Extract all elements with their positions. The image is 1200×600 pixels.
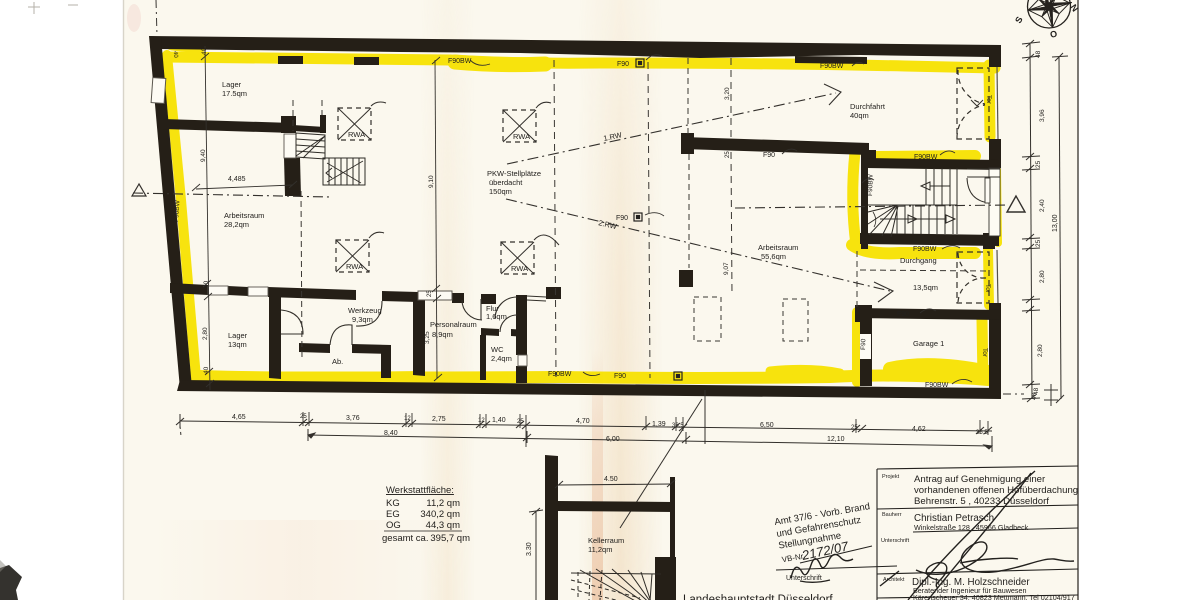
svg-text:40: 40 <box>201 47 208 55</box>
svg-text:RWA: RWA <box>513 132 530 141</box>
svg-text:4.50: 4.50 <box>604 476 618 483</box>
svg-text:13,00: 13,00 <box>1052 214 1059 232</box>
svg-text:F90BW: F90BW <box>914 154 938 161</box>
svg-text:Tor: Tor <box>984 284 991 294</box>
svg-text:WC: WC <box>491 345 504 354</box>
svg-text:2,4qm: 2,4qm <box>491 354 512 363</box>
svg-text:25: 25 <box>517 419 524 425</box>
svg-text:Landeshauptstadt Düsseldorf: Landeshauptstadt Düsseldorf <box>683 594 833 600</box>
svg-text:13qm: 13qm <box>228 340 247 349</box>
svg-text:Lager: Lager <box>222 80 242 89</box>
svg-text:vorhandenen offenen Hofüberdac: vorhandenen offenen Hofüberdachung <box>914 485 1078 496</box>
svg-text:1,6qm: 1,6qm <box>486 312 507 321</box>
svg-text:28,2qm: 28,2qm <box>224 220 249 229</box>
svg-text:F90BW: F90BW <box>448 58 472 65</box>
svg-text:48: 48 <box>1033 387 1040 395</box>
svg-text:13,5qm: 13,5qm <box>913 283 938 292</box>
svg-text:2,80: 2,80 <box>202 327 209 340</box>
svg-text:6,50: 6,50 <box>760 422 774 429</box>
svg-text:OG: OG <box>386 520 401 531</box>
svg-text:Garage 1: Garage 1 <box>913 339 944 348</box>
svg-text:12,10: 12,10 <box>827 436 845 443</box>
svg-text:F90: F90 <box>614 373 626 380</box>
svg-text:1,40: 1,40 <box>492 417 506 424</box>
svg-text:Werkzeug: Werkzeug <box>348 306 382 315</box>
svg-text:RWA: RWA <box>346 262 363 271</box>
svg-text:Tor: Tor <box>985 95 992 105</box>
svg-text:F90BW: F90BW <box>925 382 949 389</box>
svg-text:überdacht: überdacht <box>489 178 523 187</box>
svg-text:Durchfahrt: Durchfahrt <box>850 102 886 111</box>
svg-text:4,70: 4,70 <box>576 418 590 425</box>
svg-text:Werkstattfläche:: Werkstattfläche: <box>386 485 454 496</box>
svg-text:Unterschrift: Unterschrift <box>786 575 822 582</box>
svg-text:F90BW: F90BW <box>820 63 844 70</box>
svg-text:340,2 qm: 340,2 qm <box>420 509 460 520</box>
svg-text:44,3 qm: 44,3 qm <box>426 520 460 531</box>
svg-text:2,40: 2,40 <box>1039 199 1046 212</box>
svg-text:F90: F90 <box>897 311 909 318</box>
svg-text:8,40: 8,40 <box>384 430 398 437</box>
svg-text:Tor: Tor <box>981 348 988 358</box>
svg-text:PKW-Stellplätze: PKW-Stellplätze <box>487 169 541 178</box>
svg-text:3,96: 3,96 <box>1039 109 1046 122</box>
svg-text:11,2 qm: 11,2 qm <box>426 498 460 509</box>
svg-text:Bauherr: Bauherr <box>882 512 902 518</box>
svg-text:3,76: 3,76 <box>346 415 360 422</box>
svg-text:4,485: 4,485 <box>228 176 246 183</box>
svg-text:Kellerraum: Kellerraum <box>588 536 624 545</box>
svg-text:12: 12 <box>404 416 411 422</box>
svg-text:25: 25 <box>851 425 858 431</box>
svg-text:9,10: 9,10 <box>428 175 435 188</box>
svg-text:9,40: 9,40 <box>200 149 207 162</box>
svg-text:17.5qm: 17.5qm <box>222 89 247 98</box>
svg-text:4,65: 4,65 <box>232 414 246 421</box>
svg-text:8,9qm: 8,9qm <box>432 330 453 339</box>
svg-text:F90BW: F90BW <box>913 246 937 253</box>
svg-text:40: 40 <box>203 280 210 288</box>
svg-text:3.30: 3.30 <box>526 542 533 556</box>
svg-text:9,3qm: 9,3qm <box>352 315 373 324</box>
svg-text:Kärenscheuer 34, 40823 Mettman: Kärenscheuer 34, 40823 Mettmann, Tel 021… <box>913 593 1075 600</box>
svg-text:25: 25 <box>725 151 731 158</box>
svg-text:F90: F90 <box>763 152 775 159</box>
svg-text:40: 40 <box>203 366 210 374</box>
svg-text:Behrenstr. 5 , 40233 Düsseldor: Behrenstr. 5 , 40233 Düsseldorf <box>914 496 1049 507</box>
svg-text:25: 25 <box>1035 239 1042 247</box>
svg-text:Ab.: Ab. <box>332 357 343 366</box>
svg-text:EG: EG <box>386 509 400 520</box>
svg-text:25: 25 <box>1035 160 1042 168</box>
svg-text:2,75: 2,75 <box>432 416 446 423</box>
svg-text:gesamt ca.: gesamt ca. <box>382 533 428 544</box>
svg-text:Lager: Lager <box>228 331 248 340</box>
svg-text:Architekt: Architekt <box>883 577 905 583</box>
svg-text:Projekt: Projekt <box>882 474 900 480</box>
svg-text:2,80: 2,80 <box>1039 270 1046 283</box>
svg-text:55,6qm: 55,6qm <box>761 252 786 261</box>
svg-text:40: 40 <box>172 51 178 59</box>
svg-text:F90: F90 <box>616 215 628 222</box>
svg-text:36,5: 36,5 <box>672 423 684 429</box>
svg-text:25: 25 <box>427 290 433 297</box>
svg-text:1,39: 1,39 <box>652 421 666 428</box>
svg-text:Durchgang: Durchgang <box>900 256 937 265</box>
svg-text:2,80: 2,80 <box>1037 344 1044 357</box>
svg-text:Unterschrift: Unterschrift <box>881 538 910 544</box>
svg-text:48: 48 <box>1035 50 1042 58</box>
svg-text:F90: F90 <box>860 338 867 350</box>
svg-text:40qm: 40qm <box>850 111 869 120</box>
svg-text:25: 25 <box>300 414 307 420</box>
svg-text:150qm: 150qm <box>489 187 512 196</box>
svg-text:KG: KG <box>386 498 400 509</box>
svg-text:11,2qm: 11,2qm <box>588 545 612 554</box>
svg-text:Arbeitsraum: Arbeitsraum <box>758 243 798 252</box>
svg-text:3,25: 3,25 <box>424 331 431 344</box>
svg-text:F90BW: F90BW <box>548 371 572 378</box>
svg-text:3,20: 3,20 <box>724 87 731 100</box>
svg-text:6,00: 6,00 <box>606 436 620 443</box>
svg-text:F90BW: F90BW <box>867 173 875 196</box>
svg-text:F90: F90 <box>617 61 629 68</box>
svg-text:Arbeitsraum: Arbeitsraum <box>224 211 264 220</box>
svg-text:4,62: 4,62 <box>912 426 926 433</box>
svg-text:RWA: RWA <box>511 264 528 273</box>
svg-text:395,7 qm: 395,7 qm <box>430 533 470 544</box>
svg-text:12: 12 <box>478 418 485 424</box>
svg-text:36,5: 36,5 <box>976 430 988 436</box>
svg-text:RWA: RWA <box>348 130 365 139</box>
svg-text:9,07: 9,07 <box>723 262 730 275</box>
